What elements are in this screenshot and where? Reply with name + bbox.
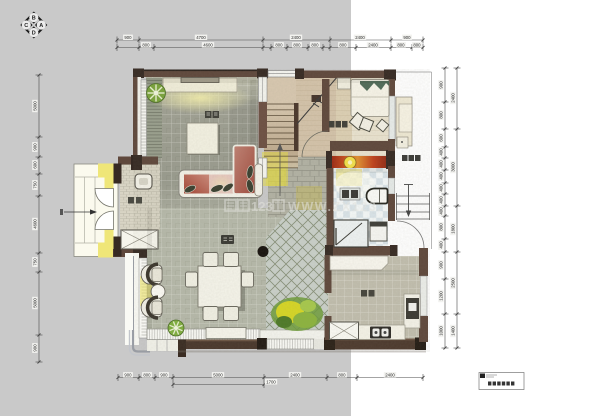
svg-text:2400: 2400 [385,373,395,378]
svg-text:5000: 5000 [32,101,37,111]
svg-text:400: 400 [438,148,443,156]
svg-text:400: 400 [438,207,443,215]
svg-text:600: 600 [32,161,37,169]
svg-text:800: 800 [338,373,346,378]
svg-text:900: 900 [160,373,168,378]
svg-text:5000: 5000 [32,298,37,308]
svg-text:400: 400 [438,160,443,168]
svg-text:B: B [32,16,36,22]
svg-text:2400: 2400 [290,373,300,378]
svg-text:800: 800 [413,43,421,48]
svg-text:800: 800 [397,43,405,48]
svg-text:900: 900 [32,143,37,151]
svg-text:400: 400 [438,172,443,180]
svg-text:900: 900 [124,35,132,40]
svg-text:4700: 4700 [196,35,206,40]
svg-text:900: 900 [32,344,37,352]
svg-text:1200: 1200 [438,291,443,301]
svg-text:2400: 2400 [355,35,365,40]
svg-text:2400: 2400 [291,35,301,40]
svg-text:1700: 1700 [266,380,276,385]
svg-text:800: 800 [142,43,150,48]
svg-text:800: 800 [438,111,443,119]
svg-text:1400: 1400 [450,326,455,336]
svg-text:3000: 3000 [450,162,455,172]
svg-text:C: C [24,23,28,29]
svg-text:900: 900 [438,261,443,269]
svg-text:900: 900 [124,373,132,378]
svg-text:2500: 2500 [450,278,455,288]
svg-text:800: 800 [275,43,283,48]
svg-text:900: 900 [438,81,443,89]
svg-text:800: 800 [339,43,347,48]
svg-text:D: D [32,31,36,37]
svg-text:5000: 5000 [213,373,223,378]
svg-text:800: 800 [311,43,319,48]
svg-text:4600: 4600 [203,43,213,48]
svg-text:400: 400 [438,196,443,204]
svg-text:2400: 2400 [368,43,378,48]
svg-text:800: 800 [143,373,151,378]
svg-text:400: 400 [438,241,443,249]
svg-text:2400: 2400 [450,93,455,103]
svg-text:600: 600 [438,134,443,142]
svg-text:900: 900 [403,35,411,40]
svg-text:400: 400 [438,184,443,192]
svg-text:4600: 4600 [32,219,37,229]
svg-text:750: 750 [32,258,37,266]
svg-text:750: 750 [32,181,37,189]
svg-text:1800: 1800 [450,224,455,234]
svg-text:1000: 1000 [438,326,443,336]
svg-text:A: A [39,23,43,29]
svg-text:800: 800 [438,223,443,231]
svg-text:800: 800 [293,43,301,48]
